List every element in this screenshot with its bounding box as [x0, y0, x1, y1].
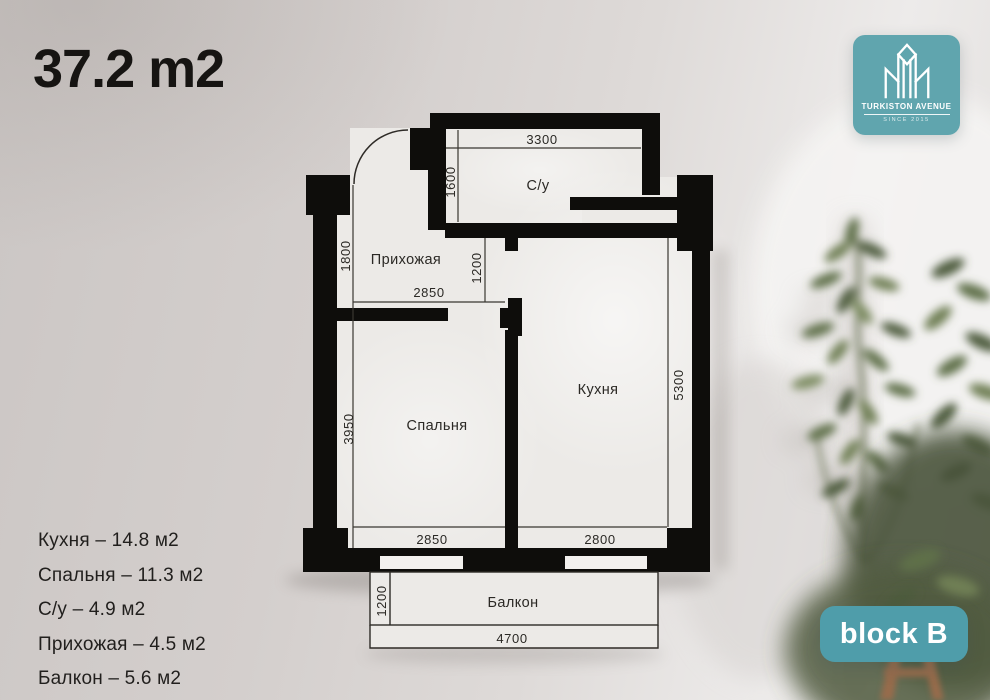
- wall-divider-corner-b: [500, 308, 522, 328]
- dim-hallway-width: 2850: [413, 285, 444, 300]
- area-item-hallway: Прихожая – 4.5 м2: [38, 628, 206, 663]
- wall-divider-top: [505, 237, 518, 251]
- dim-bathroom-width: 3300: [526, 132, 557, 147]
- room-area-list: Кухня – 14.8 м2 Спальня – 11.3 м2 С/у – …: [38, 524, 206, 697]
- wall-right: [692, 228, 710, 572]
- brand-divider: [864, 114, 950, 115]
- wall-bathroom-top: [430, 113, 657, 129]
- page-title: 37.2 m2: [33, 38, 224, 100]
- dim-balcony-height: 1200: [374, 585, 389, 616]
- wall-niche-upper: [570, 197, 692, 210]
- brand-name: TURKISTON AVENUE: [862, 102, 952, 111]
- niche-gap: [582, 210, 677, 223]
- area-item-kitchen: Кухня – 14.8 м2: [38, 524, 206, 559]
- dim-bathroom-height: 1600: [443, 166, 458, 197]
- window-bedroom: [380, 556, 463, 569]
- dim-balcony-width: 4700: [496, 631, 527, 646]
- room-label-hallway: Прихожая: [371, 252, 441, 268]
- room-label-kitchen: Кухня: [578, 382, 619, 398]
- window-kitchen: [565, 556, 647, 569]
- dim-hallway-height: 1800: [338, 240, 353, 271]
- wall-left: [313, 213, 337, 533]
- wall-kitchen-top: [445, 223, 693, 238]
- building-logo-icon: [878, 42, 936, 100]
- dim-kitchen-height: 5300: [671, 369, 686, 400]
- brand-tagline: SINCE 2015: [883, 117, 930, 123]
- poster-canvas: С/у Прихожая Спальня Кухня Балкон 3300 1…: [0, 0, 990, 700]
- dim-bedroom-height: 3950: [341, 413, 356, 444]
- dim-bedroom-width: 2850: [416, 532, 447, 547]
- block-badge: block B: [820, 606, 968, 662]
- wall-bedroom-top: [337, 308, 448, 321]
- room-label-balcony: Балкон: [487, 595, 538, 611]
- area-item-bedroom: Спальня – 11.3 м2: [38, 559, 206, 594]
- brand-logo: TURKISTON AVENUE SINCE 2015: [853, 35, 960, 135]
- area-item-bathroom: С/у – 4.9 м2: [38, 593, 206, 628]
- wall-bathroom-right: [642, 113, 660, 195]
- room-label-bathroom: С/у: [527, 178, 550, 194]
- dim-kitchen-width: 2800: [584, 532, 615, 547]
- area-item-balcony: Балкон – 5.6 м2: [38, 662, 206, 697]
- room-label-bedroom: Спальня: [406, 418, 467, 434]
- wall-pier-top-left: [306, 175, 350, 215]
- dim-kitchen-entry: 1200: [469, 252, 484, 283]
- wall-divider: [505, 330, 518, 556]
- wall-entry-stub: [410, 128, 430, 170]
